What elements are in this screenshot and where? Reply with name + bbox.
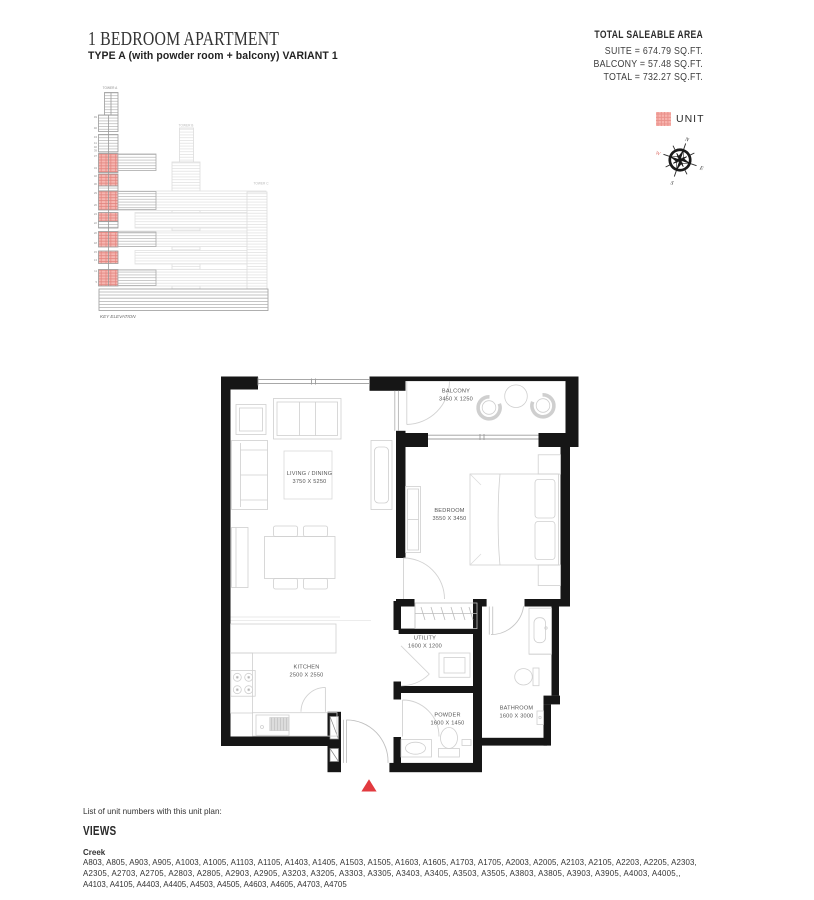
svg-text:S: S bbox=[670, 180, 675, 187]
svg-text:TOWER C: TOWER C bbox=[254, 182, 270, 186]
svg-text:13: 13 bbox=[94, 258, 98, 262]
svg-text:11: 11 bbox=[94, 269, 97, 273]
svg-text:3750 X 5250: 3750 X 5250 bbox=[293, 479, 327, 485]
svg-text:49: 49 bbox=[94, 115, 98, 119]
svg-text:5: 5 bbox=[95, 280, 97, 284]
svg-text:LIVING / DINING: LIVING / DINING bbox=[287, 471, 333, 477]
svg-text:22: 22 bbox=[94, 221, 98, 225]
svg-text:BATHROOM: BATHROOM bbox=[500, 706, 534, 712]
svg-text:TOWER A: TOWER A bbox=[103, 86, 119, 90]
svg-text:E: E bbox=[698, 165, 705, 172]
svg-text:29: 29 bbox=[94, 191, 98, 195]
svg-text:18: 18 bbox=[94, 241, 98, 245]
svg-text:KEY ELEVATION: KEY ELEVATION bbox=[100, 314, 136, 319]
svg-text:UTILITY: UTILITY bbox=[414, 636, 436, 642]
svg-text:TOWER B: TOWER B bbox=[179, 124, 194, 128]
svg-text:N: N bbox=[683, 136, 690, 143]
svg-text:BALCONY: BALCONY bbox=[442, 389, 470, 395]
svg-text:20: 20 bbox=[94, 231, 98, 235]
svg-text:26: 26 bbox=[94, 203, 98, 207]
svg-text:34: 34 bbox=[94, 166, 98, 170]
svg-text:24: 24 bbox=[94, 212, 98, 216]
svg-text:1600 X 3000: 1600 X 3000 bbox=[500, 714, 534, 720]
svg-text:BEDROOM: BEDROOM bbox=[434, 508, 464, 514]
svg-text:46: 46 bbox=[94, 126, 98, 130]
svg-text:30: 30 bbox=[94, 182, 98, 186]
svg-text:3450 X 1250: 3450 X 1250 bbox=[439, 397, 473, 403]
svg-text:KITCHEN: KITCHEN bbox=[294, 665, 320, 671]
svg-text:37: 37 bbox=[94, 154, 98, 158]
svg-text:43: 43 bbox=[94, 135, 98, 139]
svg-text:1600 X 1450: 1600 X 1450 bbox=[431, 721, 465, 727]
svg-text:15: 15 bbox=[94, 250, 98, 254]
svg-text:2500 X 2550: 2500 X 2550 bbox=[290, 673, 324, 679]
svg-text:POWDER: POWDER bbox=[434, 713, 460, 719]
svg-text:3550 X 3450: 3550 X 3450 bbox=[433, 516, 467, 522]
svg-text:1600 X 1200: 1600 X 1200 bbox=[408, 644, 442, 650]
svg-text:39: 39 bbox=[94, 149, 98, 153]
svg-text:32: 32 bbox=[94, 174, 98, 178]
svg-text:W: W bbox=[655, 150, 662, 157]
